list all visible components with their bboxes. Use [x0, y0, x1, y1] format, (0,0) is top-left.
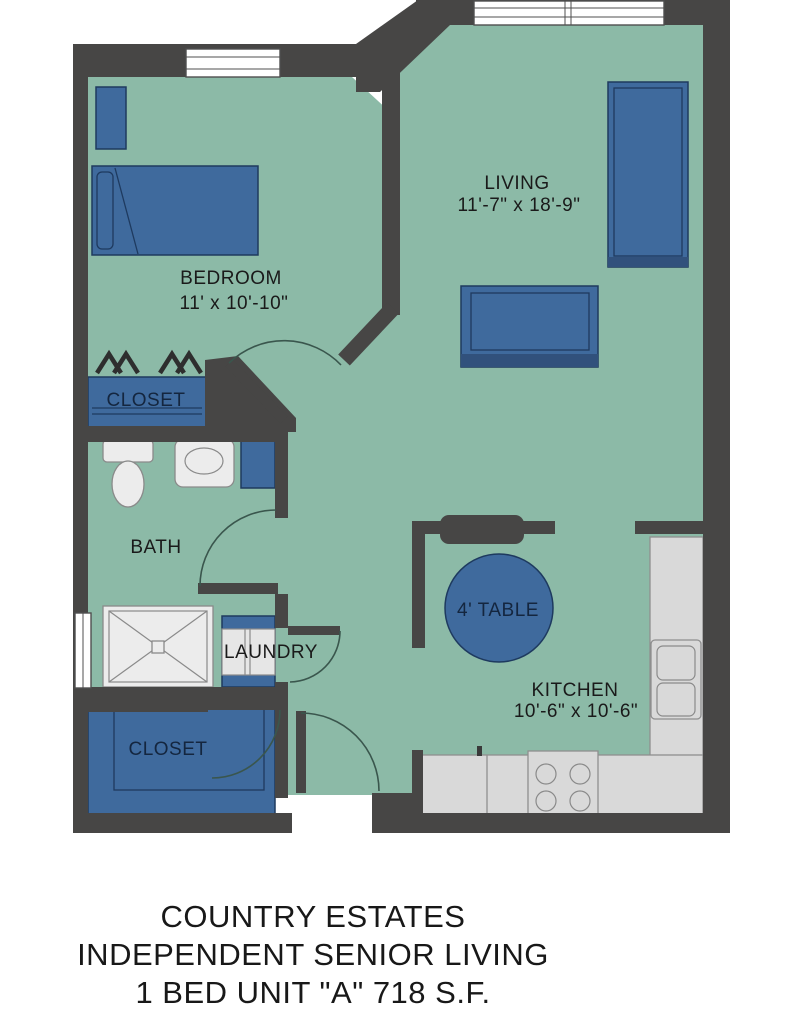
kitchen-label: KITCHEN: [532, 680, 619, 701]
kitchen-dims: 10'-6" x 10'-6": [514, 701, 638, 722]
window-icon: [474, 1, 664, 25]
wall: [412, 531, 425, 648]
wall: [703, 0, 730, 833]
sofa-icon: [608, 82, 688, 267]
toilet-bowl-icon: [112, 461, 144, 507]
bed-icon: [92, 166, 258, 255]
window-icon: [186, 49, 280, 77]
door-leaf: [208, 699, 280, 710]
wall: [73, 44, 88, 833]
title-line-2: INDEPENDENT SENIOR LIVING: [77, 937, 549, 972]
wall: [73, 813, 292, 833]
wall: [635, 521, 703, 534]
wall: [372, 793, 417, 815]
wall: [275, 432, 288, 518]
wall: [412, 750, 423, 817]
wall: [275, 594, 288, 628]
nightstand-icon: [96, 87, 126, 149]
dining-table-label: 4' TABLE: [457, 600, 539, 621]
shower-icon: [103, 606, 213, 687]
laundry-label: LAUNDRY: [224, 642, 318, 663]
title-block: COUNTRY ESTATES INDEPENDENT SENIOR LIVIN…: [77, 899, 549, 1010]
living-label: LIVING: [484, 173, 549, 194]
title-line-1: COUNTRY ESTATES: [161, 899, 466, 934]
bath-cabinet-icon: [241, 440, 275, 488]
sofa-base-shade: [608, 257, 688, 267]
wall: [275, 700, 288, 798]
wall: [382, 70, 400, 315]
bedroom-label: BEDROOM: [180, 268, 282, 289]
wall: [88, 426, 288, 442]
vanity-icon: [175, 439, 234, 487]
toilet-tank-icon: [103, 440, 153, 462]
bedroom-dims: 11' x 10'-10": [180, 293, 289, 314]
wall: [88, 700, 208, 712]
entry-closet-label: CLOSET: [128, 739, 207, 760]
title-line-3: 1 BED UNIT "A" 718 S.F.: [135, 975, 490, 1010]
living-dims: 11'-7" x 18'-9": [458, 195, 581, 216]
door-leaf: [288, 626, 340, 635]
window-icon: [75, 613, 91, 688]
faucet-icon: [477, 746, 482, 756]
door-leaf: [296, 711, 306, 793]
bath-label: BATH: [130, 537, 181, 558]
wall: [372, 813, 730, 833]
bedroom-closet-label: CLOSET: [106, 390, 185, 411]
door-leaf: [198, 583, 278, 594]
loveseat-base-shade: [461, 354, 598, 367]
floor-plan: BEDROOM 11' x 10'-10" LIVING 11'-7" x 18…: [0, 0, 791, 1024]
kitchen-bench-icon: [440, 515, 524, 544]
